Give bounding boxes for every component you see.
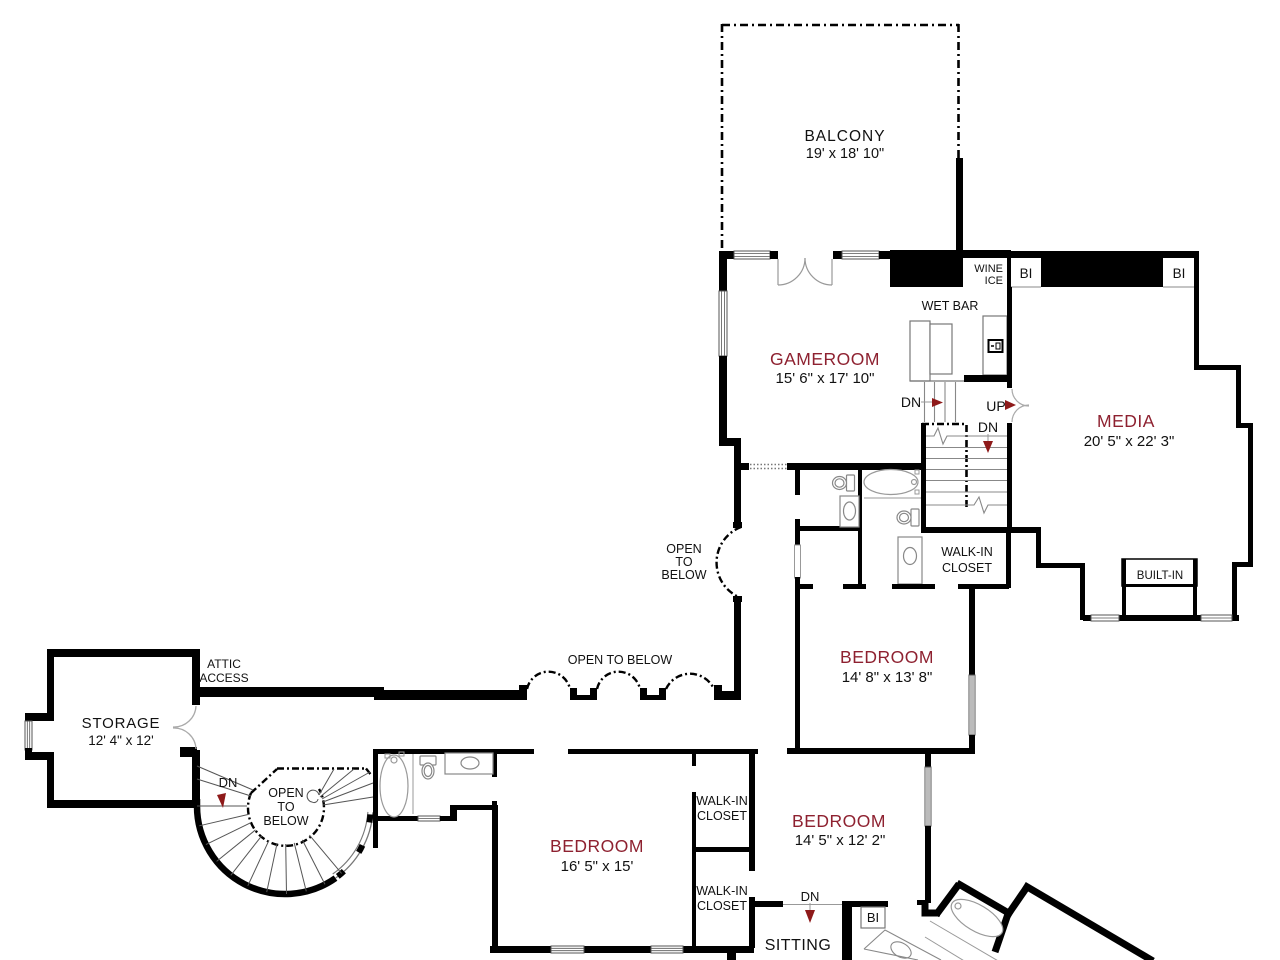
svg-text:15' 6" x 17' 10": 15' 6" x 17' 10"	[776, 370, 875, 387]
svg-text:STORAGE: STORAGE	[82, 715, 161, 732]
svg-text:ICE: ICE	[985, 275, 1003, 287]
svg-text:ACCESS: ACCESS	[199, 671, 248, 685]
svg-text:GAMEROOM: GAMEROOM	[770, 349, 880, 369]
svg-text:14' 8" x 13' 8": 14' 8" x 13' 8"	[842, 669, 933, 686]
svg-text:16' 5" x 15': 16' 5" x 15'	[561, 858, 634, 875]
svg-text:BEDROOM: BEDROOM	[550, 836, 644, 856]
svg-text:BI: BI	[1173, 266, 1186, 281]
svg-text:BI: BI	[1020, 266, 1033, 281]
svg-text:UP: UP	[986, 398, 1005, 414]
svg-text:20' 5" x 22' 3": 20' 5" x 22' 3"	[1084, 433, 1175, 450]
svg-text:BEDROOM: BEDROOM	[840, 647, 934, 667]
svg-text:TO: TO	[675, 555, 692, 569]
svg-text:DN: DN	[219, 775, 238, 790]
svg-text:CLOSET: CLOSET	[697, 899, 747, 913]
svg-text:CLOSET: CLOSET	[697, 809, 747, 823]
svg-text:WALK-IN: WALK-IN	[696, 794, 748, 808]
svg-text:OPEN: OPEN	[666, 542, 701, 556]
svg-text:BELOW: BELOW	[263, 814, 308, 828]
svg-text:OPEN: OPEN	[268, 786, 303, 800]
svg-text:DN: DN	[801, 889, 820, 904]
svg-text:SITTING: SITTING	[765, 937, 832, 954]
svg-text:DN: DN	[978, 419, 998, 435]
svg-text:CLOSET: CLOSET	[942, 561, 992, 575]
svg-text:WALK-IN: WALK-IN	[696, 884, 748, 898]
svg-text:OPEN TO BELOW: OPEN TO BELOW	[568, 653, 673, 667]
svg-text:BALCONY: BALCONY	[804, 128, 885, 145]
svg-text:WALK-IN: WALK-IN	[941, 545, 993, 559]
svg-text:ATTIC: ATTIC	[207, 657, 241, 671]
svg-text:WINE: WINE	[974, 263, 1003, 275]
svg-text:DN: DN	[901, 394, 921, 410]
svg-text:BEDROOM: BEDROOM	[792, 811, 886, 831]
svg-text:WET BAR: WET BAR	[922, 299, 979, 313]
svg-text:19' x 18' 10": 19' x 18' 10"	[806, 146, 884, 162]
svg-text:BUILT-IN: BUILT-IN	[1137, 570, 1183, 582]
svg-text:12' 4" x 12': 12' 4" x 12'	[88, 733, 154, 748]
svg-text:BELOW: BELOW	[661, 568, 706, 582]
svg-text:MEDIA: MEDIA	[1097, 411, 1155, 431]
svg-text:TO: TO	[277, 800, 294, 814]
svg-text:14' 5" x 12' 2": 14' 5" x 12' 2"	[795, 832, 886, 849]
svg-text:BI: BI	[867, 910, 879, 925]
